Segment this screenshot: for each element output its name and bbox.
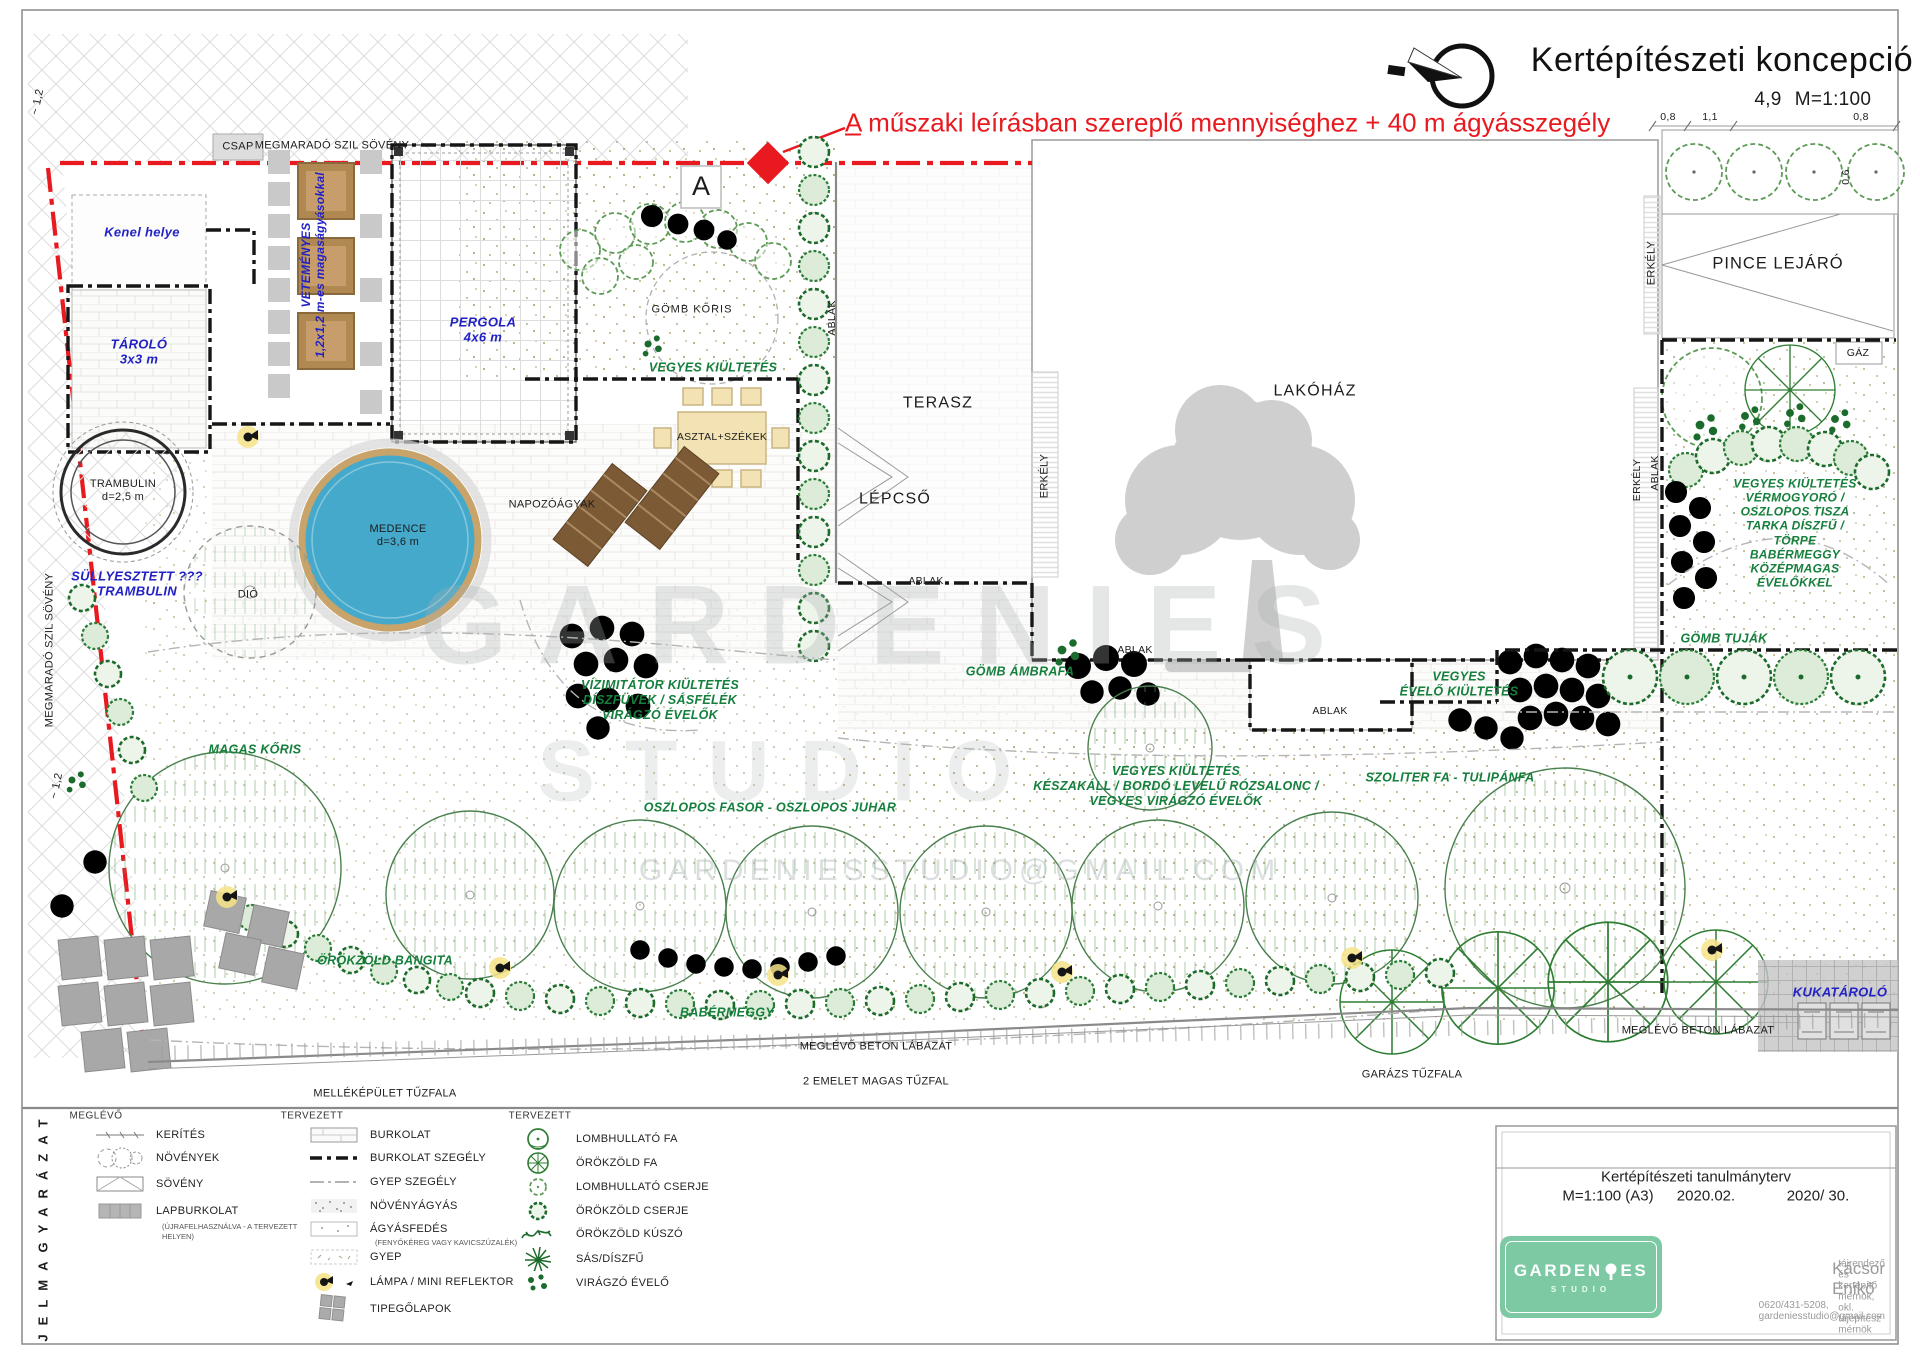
label-napozoagyak: NAPOZÓÁGYAK: [509, 499, 596, 512]
label-megmarado-soveny-top: MEGMARADÓ SZIL SÖVÉNY: [255, 140, 409, 153]
legend-item-label: KERÍTÉS: [156, 1129, 205, 1141]
red-annotation-text: műszaki leírásban szereplő mennyiséghez …: [868, 108, 1610, 138]
legend-header-tervezett-2: TERVEZETT: [509, 1111, 572, 1122]
legend-item-label: ÖRÖKZÖLD FA: [576, 1157, 658, 1169]
label-beton-labazat-1: MEGLÉVŐ BETON LÁBAZAT: [800, 1041, 953, 1054]
label-mellekepulet-tuzfal: MELLÉKÉPÜLET TŰZFALA: [313, 1088, 456, 1101]
label-gomb-ambrafa: GÖMB ÁMBRAFA: [966, 665, 1074, 680]
label-orokzold-bangita: ÖRÖKZÖLD BANGITA: [317, 954, 453, 969]
legend-header-tervezett-1: TERVEZETT: [281, 1111, 344, 1122]
label-magas-koris: MAGAS KŐRIS: [209, 743, 302, 758]
watermark-email: GARDENIESSTUDIO@GMAIL.COM: [639, 854, 1281, 888]
label-ablak-3: ABLAK: [1312, 705, 1347, 717]
scale-label: M=1:100: [1795, 89, 1872, 111]
legend-item-label: TIPEGŐLAPOK: [370, 1303, 452, 1315]
kerites-symbol: [94, 1124, 146, 1146]
label-tarolo: TÁROLÓ 3x3 m: [111, 337, 168, 368]
legend-item-label: VIRÁGZÓ ÉVELŐ: [576, 1277, 669, 1289]
titleblock-credentials: tájrendező és kertépítő mérnök, okl. táj…: [1838, 1259, 1885, 1336]
label-emelet-tuzfal: 2 EMELET MAGAS TŰZFAL: [803, 1076, 949, 1089]
label-vegyes-evelo: VEGYES ÉVELŐ KIÜLTETÉS: [1400, 669, 1519, 699]
label-babermeggy: BABÉRMEGGY: [680, 1006, 774, 1021]
red-annotation-marker: A: [845, 108, 861, 138]
titleblock-sheet-number: 2020/ 30.: [1787, 1188, 1850, 1205]
label-beton-labazat-2: MEGLÉVŐ BETON LÁBAZAT: [1622, 1025, 1775, 1038]
titleblock-project-title: Kertépítészeti tanulmányterv: [1601, 1169, 1791, 1186]
orokzold-kuszo-symbol: [514, 1222, 566, 1246]
legend-item-label: LÁMPA / MINI REFLEKTOR: [370, 1276, 514, 1288]
legend-item-label: GYEP SZEGÉLY: [370, 1176, 457, 1188]
label-medence: MEDENCE d=3,6 m: [369, 523, 426, 549]
garden-plan-sheet: .exist{fill:none;stroke:#b0b0b0;stroke-d…: [0, 0, 1920, 1357]
legend-item-label: GYEP: [370, 1251, 402, 1263]
gyep-szegely-symbol: [308, 1171, 360, 1193]
novenyagyas-symbol: [308, 1195, 360, 1217]
gardenies-logo: GARDENES STUDIO: [1500, 1236, 1662, 1318]
legend-item-label: ÖRÖKZÖLD KÚSZÓ: [576, 1228, 683, 1240]
watermark-brand: GARDENIES: [420, 561, 1356, 690]
label-szoliter-fa: SZOLITER FA - TULIPÁNFA: [1366, 771, 1535, 786]
sas-diszfu-symbol: [514, 1247, 566, 1271]
label-pergola: PERGOLA 4x6 m: [450, 315, 516, 346]
label-ablak-terasz: ABLAK: [826, 300, 838, 335]
legend-item-label: BURKOLAT: [370, 1129, 431, 1141]
lombhullato-cserje-symbol: [514, 1175, 566, 1199]
scale-prefix: 4,9: [1754, 89, 1781, 111]
red-annotation: A műszaki leírásban szereplő mennyiséghe…: [845, 108, 1610, 139]
label-gomb-tujak: GÖMB TUJÁK: [1680, 632, 1767, 647]
burkolat-szegely-symbol: [308, 1147, 360, 1169]
viragzo-evelo-symbol: [514, 1271, 566, 1295]
label-megmarado-soveny-left: MEGMARADÓ SZIL SÖVÉNY: [44, 573, 57, 727]
label-vizimitator: VÍZIMITÁTOR KIÜLTETÉS DÍSZFÜVEK / SÁSFÉL…: [581, 678, 739, 722]
legend-item-label: LOMBHULLATÓ CSERJE: [576, 1181, 709, 1193]
label-kenel-helye: Kenel helye: [104, 224, 180, 239]
legend-item-label: ÁGYÁSFEDÉS: [370, 1223, 448, 1235]
label-vegyes-kiultetes-right: VEGYES KIÜLTETÉS VÉRMOGYORÓ / OSZLOPOS T…: [1733, 476, 1858, 589]
burkolat-symbol: [308, 1124, 360, 1146]
label-ablak-house-right: ABLAK: [1649, 455, 1661, 490]
orokzold-fa-symbol: [514, 1151, 566, 1175]
label-gaz: GÁZ: [1847, 347, 1870, 359]
titleblock-contact: 0620/431-5208, gardeniesstudio@gmail.com: [1759, 1300, 1885, 1322]
label-asztal-szekek: ASZTAL+SZÉKEK: [677, 431, 767, 443]
legend-item-label: NÖVÉNYEK: [156, 1152, 220, 1164]
lapburkolat-symbol: [94, 1200, 146, 1222]
lombhullato-fa-symbol: [514, 1127, 566, 1151]
label-vegyes-kiultetes: VEGYES KIÜLTETÉS: [649, 361, 777, 376]
titleblock-scale: M=1:100 (A3): [1562, 1188, 1653, 1205]
gyep-symbol: [308, 1246, 360, 1268]
legend-header-meglevo: MEGLÉVŐ: [70, 1111, 123, 1122]
dim-11: 1,1: [1702, 111, 1718, 123]
label-terasz: TERASZ: [903, 395, 973, 414]
label-garazs-tuzfal: GARÁZS TŰZFALA: [1362, 1069, 1463, 1082]
soveny-symbol: [94, 1173, 146, 1195]
label-kukatarolo: KUKATÁROLÓ: [1793, 984, 1887, 999]
section-marker-a: A: [692, 171, 710, 203]
lampa-symbol: [308, 1269, 360, 1295]
label-erkely-house-left: ERKÉLY: [1039, 454, 1052, 498]
legend-item-label: LOMBHULLATÓ FA: [576, 1133, 678, 1145]
titleblock-date: 2020.02.: [1677, 1188, 1735, 1205]
label-lakohaz: LAKÓHÁZ: [1273, 383, 1356, 402]
tipegolapok-symbol: [308, 1294, 360, 1324]
legend-item-label: ÖRÖKZÖLD CSERJE: [576, 1205, 689, 1217]
label-vetemenyes: VETEMÉNYES 1,2x1,2 m-es magaságyásokkal: [299, 172, 327, 358]
dim-08-right: 0,8: [1853, 111, 1869, 123]
logo-inner-border: [1505, 1241, 1657, 1313]
legend-item-label: LAPBURKOLAT: [156, 1205, 239, 1217]
agyasfedes-symbol: [308, 1218, 360, 1240]
dim-08-left: 0,8: [1660, 111, 1676, 123]
label-lepcso: LÉPCSŐ: [859, 491, 931, 510]
label-ablak-1: ABLAK: [908, 575, 943, 587]
legend-item-label: SÁS/DÍSZFŰ: [576, 1253, 644, 1265]
label-trambulin: TRAMBULIN d=2,5 m: [90, 478, 156, 504]
label-ablak-2: ABLAK: [1117, 644, 1152, 656]
meglevo-novenyek-symbol: [94, 1146, 146, 1170]
legend-item-label: SÖVÉNY: [156, 1178, 204, 1190]
label-csap: CSAP: [222, 141, 253, 154]
legend-item-label: NÖVÉNYÁGYÁS: [370, 1200, 458, 1212]
lapburkolat-subtext: (ÚJRAFELHASZNÁLVA - A TERVEZETT HELYEN): [162, 1222, 297, 1242]
legend-item-label: BURKOLAT SZEGÉLY: [370, 1152, 486, 1164]
label-erkely-pince: ERKÉLY: [1646, 241, 1659, 285]
legend-side-label: JELMAGYARÁZAT: [35, 1110, 50, 1341]
orokzold-cserje-symbol: [514, 1199, 566, 1223]
label-oszlopos-fasor: OSZLOPOS FASOR - OSZLOPOS JUHAR: [644, 801, 896, 816]
label-gomb-koris: GÖMB KŐRIS: [652, 304, 733, 317]
label-vegyes-kozep: VEGYES KIÜLTETÉS KÉSZAKÁLL / BORDÓ LEVEL…: [1033, 764, 1319, 808]
label-pince-lejaro: PINCE LEJÁRÓ: [1712, 254, 1843, 273]
label-erkely-house-right: ERKÉLY: [1631, 459, 1643, 501]
drawing-title: Kertépítészeti koncepció: [1531, 40, 1913, 80]
label-dio: DIÓ: [238, 589, 258, 602]
label-sullyesztett-trambulin: SÜLLYESZTETT ??? TRAMBULIN: [71, 569, 203, 600]
dim-06: 0,6: [1840, 169, 1852, 185]
